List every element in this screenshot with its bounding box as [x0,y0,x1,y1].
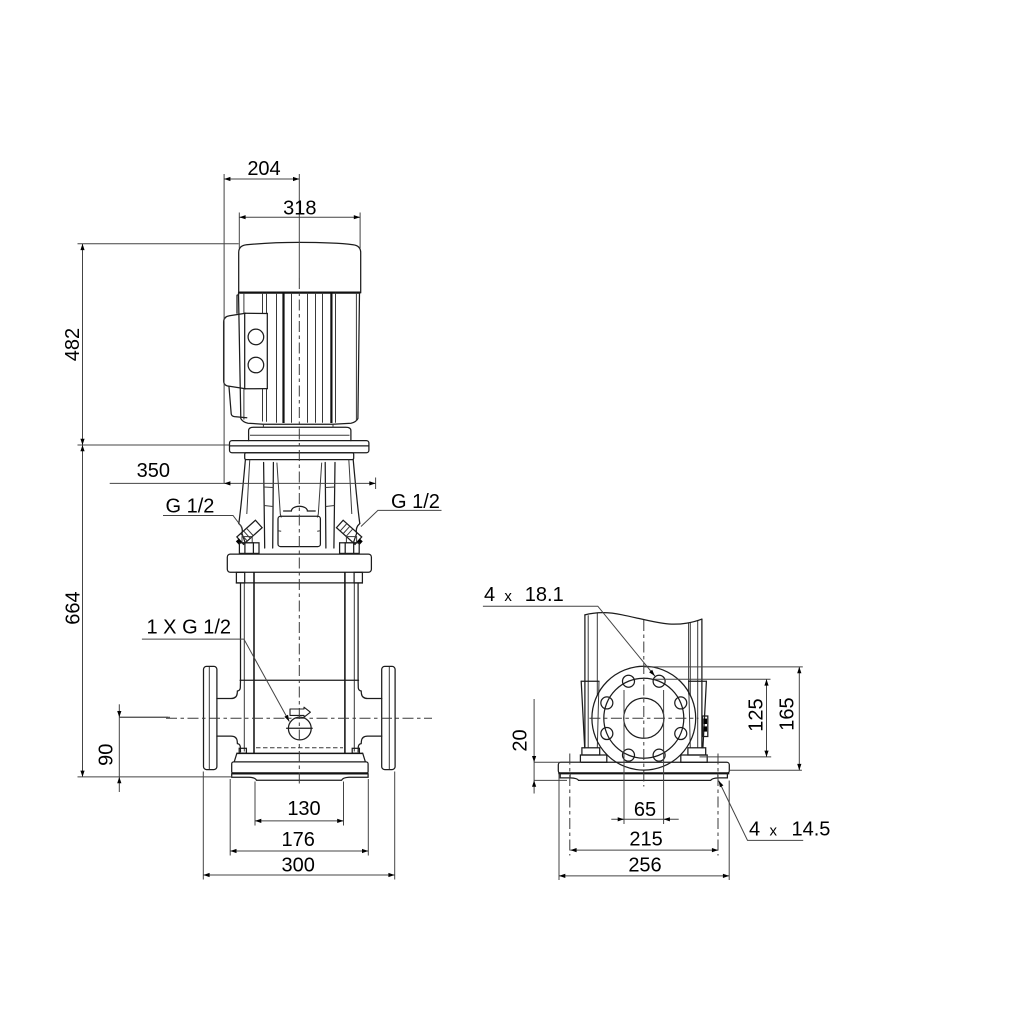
svg-text:350: 350 [137,460,170,482]
svg-text:G 1/2: G 1/2 [166,496,215,518]
svg-text:664: 664 [63,591,85,624]
svg-text:125: 125 [746,698,768,731]
svg-text:165: 165 [776,697,798,730]
svg-text:204: 204 [247,158,280,180]
svg-text:318: 318 [283,197,316,219]
svg-text:130: 130 [287,798,320,820]
svg-text:4: 4 [484,584,495,606]
svg-text:215: 215 [629,829,662,851]
svg-text:x: x [770,822,778,839]
svg-text:14.5: 14.5 [792,818,831,840]
svg-text:90: 90 [96,744,118,766]
svg-text:300: 300 [282,854,315,876]
svg-text:176: 176 [282,829,315,851]
svg-text:482: 482 [62,328,84,361]
svg-text:20: 20 [510,729,532,751]
svg-text:256: 256 [628,855,661,877]
svg-text:x: x [504,588,512,605]
svg-text:18.1: 18.1 [525,584,564,606]
svg-text:1 X G 1/2: 1 X G 1/2 [147,616,232,638]
svg-text:4: 4 [749,818,760,840]
svg-text:G 1/2: G 1/2 [391,491,440,513]
svg-text:65: 65 [634,799,656,821]
